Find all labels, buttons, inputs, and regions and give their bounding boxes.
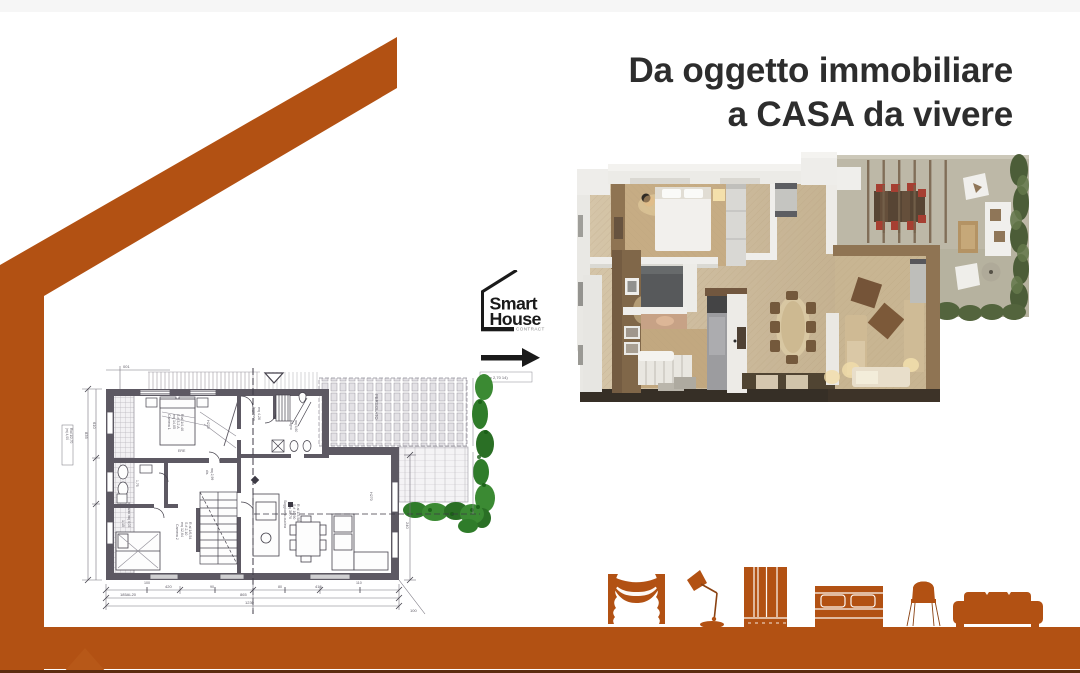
svg-text:ERE: ERE [178, 449, 186, 453]
svg-text:100: 100 [144, 581, 150, 585]
svg-text:Bagno: Bagno [289, 420, 293, 430]
svg-text:001: 001 [123, 364, 130, 369]
svg-text:Camera 1: Camera 1 [167, 414, 171, 430]
svg-text:dis.: dis. [205, 470, 209, 475]
svg-text:1,15: 1,15 [121, 520, 125, 527]
svg-text:mq 12,64: mq 12,64 [180, 522, 184, 537]
svg-text:mq 5,60: mq 5,60 [294, 420, 298, 432]
svg-text:415: 415 [315, 584, 322, 589]
svg-text:835: 835 [84, 432, 89, 439]
svg-text:terrazzo mq 4,03: terrazzo mq 4,03 [127, 502, 131, 528]
svg-text:90: 90 [210, 585, 214, 589]
svg-text:Rial 1/4,40: Rial 1/4,40 [180, 414, 184, 431]
svg-text:S # 2,10: S # 2,10 [184, 522, 188, 535]
svg-text:mq 2,99: mq 2,99 [210, 468, 214, 480]
svg-text:420: 420 [165, 584, 172, 589]
svg-text:mq 14,05: mq 14,05 [172, 414, 176, 429]
svg-text:Rial 1/2,70: Rial 1/2,70 [69, 428, 73, 443]
svg-text:PERGOLATO: PERGOLATO [374, 394, 379, 420]
svg-text:CONTRACT: CONTRACT [516, 327, 545, 332]
svg-text:185AL20: 185AL20 [120, 592, 137, 597]
svg-text:S # 3,2 A: S # 3,2 A [176, 414, 180, 429]
svg-text:mq 4,26: mq 4,26 [257, 407, 261, 420]
svg-text:1,75: 1,75 [135, 480, 139, 487]
svg-text:1230: 1230 [245, 600, 255, 605]
svg-text:H270: H270 [369, 492, 373, 501]
svg-text:100: 100 [410, 608, 417, 613]
svg-text:240: 240 [405, 522, 410, 529]
svg-text:865: 865 [240, 592, 247, 597]
svg-text:R al 1/6,54: R al 1/6,54 [188, 522, 192, 539]
svg-text:80: 80 [278, 585, 282, 589]
svg-text:(m) 4,00: (m) 4,00 [65, 428, 69, 440]
svg-text:110: 110 [356, 581, 362, 585]
svg-text:Camera 2: Camera 2 [175, 524, 179, 540]
svg-text:610: 610 [92, 422, 97, 429]
svg-text:H270: H270 [206, 420, 210, 429]
svg-text:R al 1/3,58: R al 1/3,58 [296, 504, 300, 521]
